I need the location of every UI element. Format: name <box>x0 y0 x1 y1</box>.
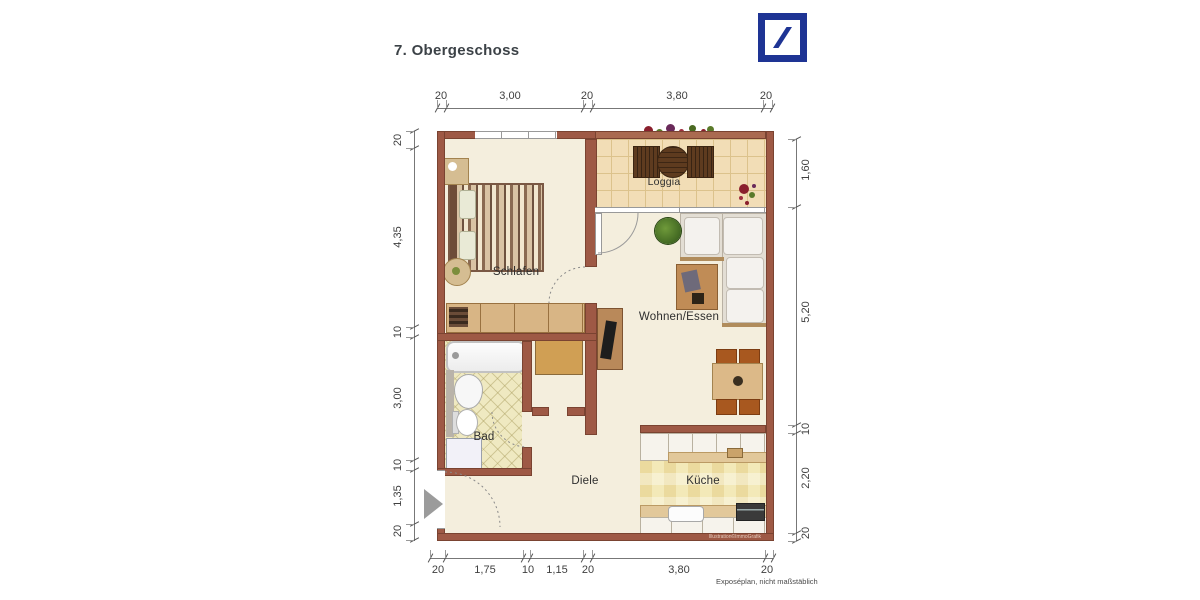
dim-label: 20 <box>432 564 444 576</box>
dim-label: 20 <box>392 134 404 146</box>
dim-label: 20 <box>581 90 593 102</box>
tick-ext <box>788 139 796 140</box>
dim-label: 20 <box>582 564 594 576</box>
bedroom-door-arc <box>549 267 585 303</box>
dim-label: 3,00 <box>392 387 404 408</box>
dim-label: 20 <box>760 90 772 102</box>
tick-ext <box>788 425 796 426</box>
dim-label: 20 <box>435 90 447 102</box>
tick-ext <box>583 550 584 558</box>
tick-ext <box>406 131 414 132</box>
dim-label: 4,35 <box>392 226 404 247</box>
room-label-diele: Diele <box>571 475 598 487</box>
dim-label: 2,20 <box>800 467 812 488</box>
tick-ext <box>406 148 414 149</box>
tick-ext <box>765 550 766 558</box>
room-label-loggia: Loggia <box>648 176 681 188</box>
room-label-kueche: Küche <box>686 475 720 487</box>
tick-ext <box>772 100 773 108</box>
tick-ext <box>788 541 796 542</box>
dim-label: 10 <box>522 564 534 576</box>
tick-ext <box>523 550 524 558</box>
logo-slash-icon <box>765 20 800 55</box>
dim-label: 1,60 <box>800 159 812 180</box>
tick-ext <box>406 470 414 471</box>
entrance-arrow-icon <box>424 489 443 519</box>
dim-label: 5,20 <box>800 301 812 322</box>
dim-label: 1,75 <box>474 564 495 576</box>
page-title: 7. Obergeschoss <box>394 42 519 59</box>
dim-label: 3,80 <box>666 90 687 102</box>
tick-ext <box>592 550 593 558</box>
tick-ext <box>530 550 531 558</box>
dim-label: 20 <box>392 525 404 537</box>
ruler-right <box>796 139 797 541</box>
logo-frame <box>765 20 800 55</box>
tick-ext <box>406 337 414 338</box>
ruler-bottom <box>430 558 773 559</box>
ruler-top <box>437 108 773 109</box>
floorplan-page: 7. Obergeschoss <box>0 0 1200 600</box>
footer-note: Exposéplan, nicht maßstäblich <box>716 577 818 586</box>
dim-label: 3,80 <box>668 564 689 576</box>
floorplan: Loggia Schlafen Wohnen/Essen Bad Diele K… <box>437 131 774 541</box>
tick-ext <box>788 533 796 534</box>
dim-label: 10 <box>800 423 812 435</box>
dim-label: 20 <box>761 564 773 576</box>
tick-ext <box>406 524 414 525</box>
tick-ext <box>406 540 414 541</box>
dim-label: 20 <box>800 527 812 539</box>
entrance-door-arc <box>445 472 500 527</box>
bath-door-arc <box>492 412 527 447</box>
tick-ext <box>445 550 446 558</box>
tick-ext <box>406 327 414 328</box>
room-label-schlafen: Schlafen <box>493 266 539 278</box>
room-label-wohnen: Wohnen/Essen <box>639 311 719 323</box>
room-label-bad: Bad <box>473 431 494 443</box>
dim-label: 10 <box>392 326 404 338</box>
dim-label: 1,35 <box>392 485 404 506</box>
tick-ext <box>773 550 774 558</box>
tick-ext <box>430 550 431 558</box>
dim-label: 1,15 <box>546 564 567 576</box>
tick-ext <box>788 207 796 208</box>
tick-ext <box>788 433 796 434</box>
tick-ext <box>406 460 414 461</box>
illustrator-watermark: Illustration©ImmoGrafik <box>687 534 761 540</box>
dim-label: 3,00 <box>499 90 520 102</box>
door-swing-arcs <box>437 131 774 541</box>
balcony-door-arc <box>598 213 638 253</box>
dim-label: 10 <box>392 459 404 471</box>
deutsche-bank-logo <box>758 13 807 62</box>
